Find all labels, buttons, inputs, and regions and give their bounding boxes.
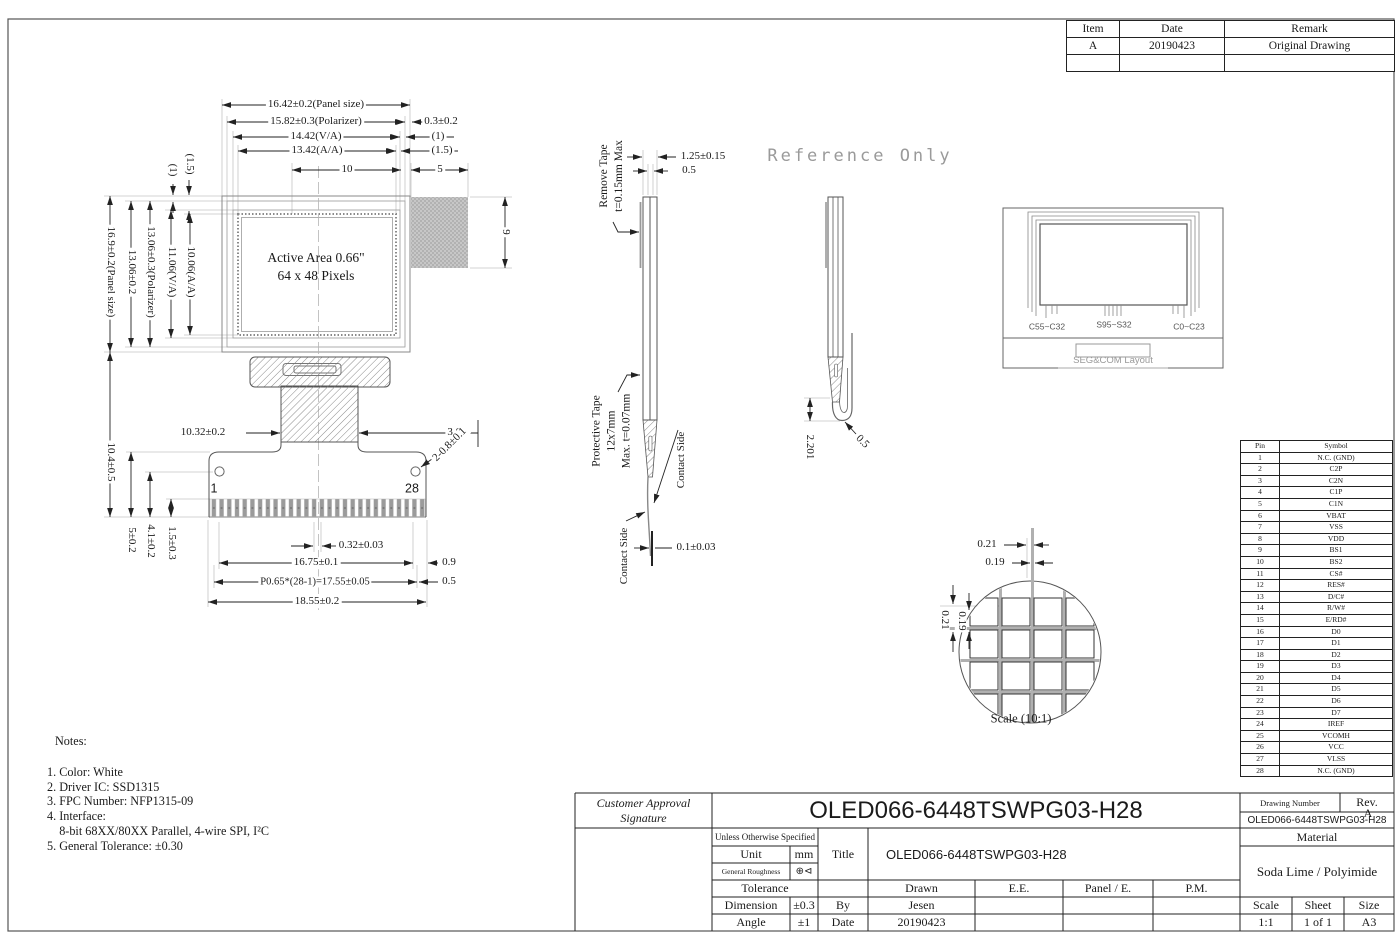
material-label: Material <box>1240 828 1394 846</box>
dim-polarizer-height: 13.06±0.3(Polarizer) <box>144 224 156 320</box>
pin-row: 25 VCOMH <box>1241 730 1393 742</box>
dim-5-02: 5±0.2 <box>125 525 137 554</box>
dim-panel-width: 16.42±0.2(Panel size) <box>266 99 366 111</box>
date-label: Date <box>818 914 868 931</box>
pin-table: Pin Symbol 1 N.C. (GND) 2 C2P 3 C2N 4 C1… <box>1240 440 1393 777</box>
size-label: Size <box>1344 897 1394 914</box>
dim-03: 0.3±0.2 <box>422 116 460 128</box>
pixel-detail-circle <box>946 528 1101 723</box>
dim-15: (1.5) <box>429 145 454 157</box>
pin-row: 7 VSS <box>1241 522 1393 534</box>
unit-label: Unit <box>712 846 790 863</box>
dim-032: 0.32±0.03 <box>337 540 386 552</box>
note-line: 3. FPC Number: NFP1315-09 <box>47 794 269 809</box>
tolerance-label: Tolerance <box>712 880 818 897</box>
pin-col-pin: Pin <box>1241 441 1280 453</box>
dim-1675: 16.75±0.1 <box>292 557 341 569</box>
unless-otherwise-specified: Unless Otherwise Specified <box>712 828 818 846</box>
angle-value: ±1 <box>790 914 818 931</box>
drawn-label: Drawn <box>868 880 975 897</box>
pin-row: 14 R/W# <box>1241 603 1393 615</box>
dim-top-1: (1) <box>166 162 178 179</box>
detail-dim-left-019: 0.19 <box>955 609 967 632</box>
dim-top-15: (1.5) <box>183 151 195 176</box>
revision-row: A 20190423 Original Drawing <box>1067 38 1395 55</box>
note-line: 8-bit 68XX/80XX Parallel, 4-wire SPI, I²… <box>47 824 269 839</box>
detail-dim-top-019: 0.19 <box>983 557 1006 569</box>
angle-label: Angle <box>712 914 790 931</box>
pin-row: 22 D6 <box>1241 696 1393 708</box>
segcom-caption: SEG&COM Layout <box>1073 356 1153 366</box>
detail-dim-top-021: 0.21 <box>975 539 998 551</box>
pin-number-first: 1 <box>211 482 218 495</box>
title-value: OLED066-6448TSWPG03-H28 <box>868 828 1258 880</box>
notes-title: Notes: <box>55 734 87 749</box>
dim-01: 0.1±0.03 <box>674 542 717 554</box>
pin-row: 19 D3 <box>1241 661 1393 673</box>
size-value: A3 <box>1344 914 1394 931</box>
dim-aa-height: 10.06(A/A) <box>184 244 196 299</box>
dimension-label: Dimension <box>712 897 790 914</box>
pin-row: 10 BS2 <box>1241 556 1393 568</box>
pin-row: 17 D1 <box>1241 638 1393 650</box>
dim-aa-width: 13.42(A/A) <box>289 145 344 157</box>
panel-e-label: Panel / E. <box>1063 880 1153 897</box>
note-line: 1. Color: White <box>47 765 269 780</box>
dim-10: 10 <box>340 164 355 176</box>
active-area-label-line2: 64 x 48 Pixels <box>278 269 355 283</box>
pin-row: 6 VBAT <box>1241 510 1393 522</box>
scale-label: Scale <box>1240 897 1292 914</box>
rev-col-remark: Remark <box>1225 21 1395 38</box>
pin-row: 1 N.C. (GND) <box>1241 452 1393 464</box>
ee-label: E.E. <box>975 880 1063 897</box>
dim-125: 1.25±0.15 <box>679 151 728 163</box>
pin-row: 3 C2N <box>1241 475 1393 487</box>
gold-fingers <box>210 499 425 517</box>
pin-row: 12 RES# <box>1241 580 1393 592</box>
title-label: Title <box>818 828 868 880</box>
pin-row: 27 VLSS <box>1241 754 1393 766</box>
note-line: 5. General Tolerance: ±0.30 <box>47 839 269 854</box>
revision-row-empty <box>1067 55 1395 72</box>
pin-number-last: 28 <box>405 482 419 495</box>
segcom-label-left: C55~C32 <box>1029 323 1065 332</box>
engineering-drawing-page: Item Date Remark A 20190423 Original Dra… <box>0 0 1400 937</box>
pin-row: 9 BS1 <box>1241 545 1393 557</box>
by-value: Jesen <box>868 897 975 914</box>
segcom-label-center: S95~S32 <box>1096 321 1131 330</box>
pin-row: 2 C2P <box>1241 464 1393 476</box>
pin-row: 18 D2 <box>1241 649 1393 661</box>
rev-col-item: Item <box>1067 21 1120 38</box>
roughness-icon: ⊕⊲ <box>790 863 818 880</box>
segcom-label-right: C0~C23 <box>1173 323 1204 332</box>
pm-label: P.M. <box>1153 880 1240 897</box>
note-line: 2. Driver IC: SSD1315 <box>47 780 269 795</box>
pin-row: 4 C1P <box>1241 487 1393 499</box>
dim-pitch: P0.65*(28-1)=17.55±0.05 <box>258 576 371 587</box>
dim-1032: 10.32±0.2 <box>179 427 228 439</box>
sheet-value: 1 of 1 <box>1292 914 1344 931</box>
dimension-value: ±0.3 <box>790 897 818 914</box>
notes-list: 1. Color: White 2. Driver IC: SSD1315 3.… <box>47 765 269 853</box>
scale-value: 1:1 <box>1240 914 1292 931</box>
contact-side-right: Contact Side <box>676 432 688 489</box>
dim-5: 5 <box>435 164 445 176</box>
customer-approval-cell: Customer Approval Signature <box>575 793 712 828</box>
dim-1306: 13.06±0.2 <box>125 248 137 297</box>
pin-row: 24 IREF <box>1241 719 1393 731</box>
pin-row: 11 CS# <box>1241 568 1393 580</box>
drawing-number-label: Drawing Number <box>1240 793 1340 812</box>
dim-panel-height: 16.9±0.2(Panel size) <box>104 225 116 320</box>
side-view-bent <box>826 197 852 421</box>
dim-41: 4.1±0.2 <box>144 522 156 560</box>
note-line: 4. Interface: <box>47 809 269 824</box>
dim-05-side: 0.5 <box>680 165 698 177</box>
dim-polarizer-width: 15.82±0.3(Polarizer) <box>268 116 364 128</box>
dim-104: 10.4±0.5 <box>104 440 116 483</box>
dim-1: (1) <box>430 131 447 143</box>
remove-tape-label: Remove Tape t=0.15mm Max <box>597 140 627 212</box>
pin-row: 13 D/C# <box>1241 591 1393 603</box>
pin-row: 23 D7 <box>1241 707 1393 719</box>
material-value: Soda Lime / Polyimide <box>1240 846 1394 897</box>
detail-dim-left-021: 0.21 <box>938 608 950 631</box>
pin-row: 8 VDD <box>1241 533 1393 545</box>
pin-row: 5 C1N <box>1241 498 1393 510</box>
dim-05: 0.5 <box>440 576 458 588</box>
dim-15-03: 1.5±0.3 <box>165 524 177 562</box>
reference-only-watermark: Reference Only <box>767 146 952 166</box>
by-label: By <box>818 897 868 914</box>
pin-row: 16 D0 <box>1241 626 1393 638</box>
rev-value: A <box>1360 806 1376 820</box>
pin-col-symbol: Symbol <box>1280 441 1393 453</box>
roughness-label: General Roughness <box>712 863 790 880</box>
active-area-label-line1: Active Area 0.66" <box>267 251 364 265</box>
main-title: OLED066-6448TSWPG03-H28 <box>712 793 1240 828</box>
pin-row: 15 E/RD# <box>1241 614 1393 626</box>
date-value: 20190423 <box>868 914 975 931</box>
seg-com-layout-box <box>1003 208 1223 368</box>
dim-va-width: 14.42(V/A) <box>288 131 343 143</box>
contact-side-left: Contact Side <box>619 528 631 585</box>
dim-va-height: 11.06(V/A) <box>165 245 177 300</box>
pin-row: 20 D4 <box>1241 672 1393 684</box>
detail-scale-label: Scale (10:1) <box>991 712 1052 725</box>
unit-value: mm <box>790 846 818 863</box>
fpc-stiffener-block <box>411 197 468 268</box>
dim-9: 9 <box>499 227 511 237</box>
sheet-label: Sheet <box>1292 897 1344 914</box>
pin-row: 28 N.C. (GND) <box>1241 765 1393 777</box>
fpc-tail <box>209 357 426 517</box>
rev-col-date: Date <box>1120 21 1225 38</box>
dim-2201: 2.201 <box>803 433 815 462</box>
pin-row: 21 D5 <box>1241 684 1393 696</box>
dim-09: 0.9 <box>440 557 458 569</box>
pin-row: 26 VCC <box>1241 742 1393 754</box>
dim-1855: 18.55±0.2 <box>293 596 342 608</box>
protective-tape-label: Protective Tape 12x7mm Max. t=0.07mm <box>590 394 635 469</box>
revision-table: Item Date Remark A 20190423 Original Dra… <box>1066 20 1395 72</box>
